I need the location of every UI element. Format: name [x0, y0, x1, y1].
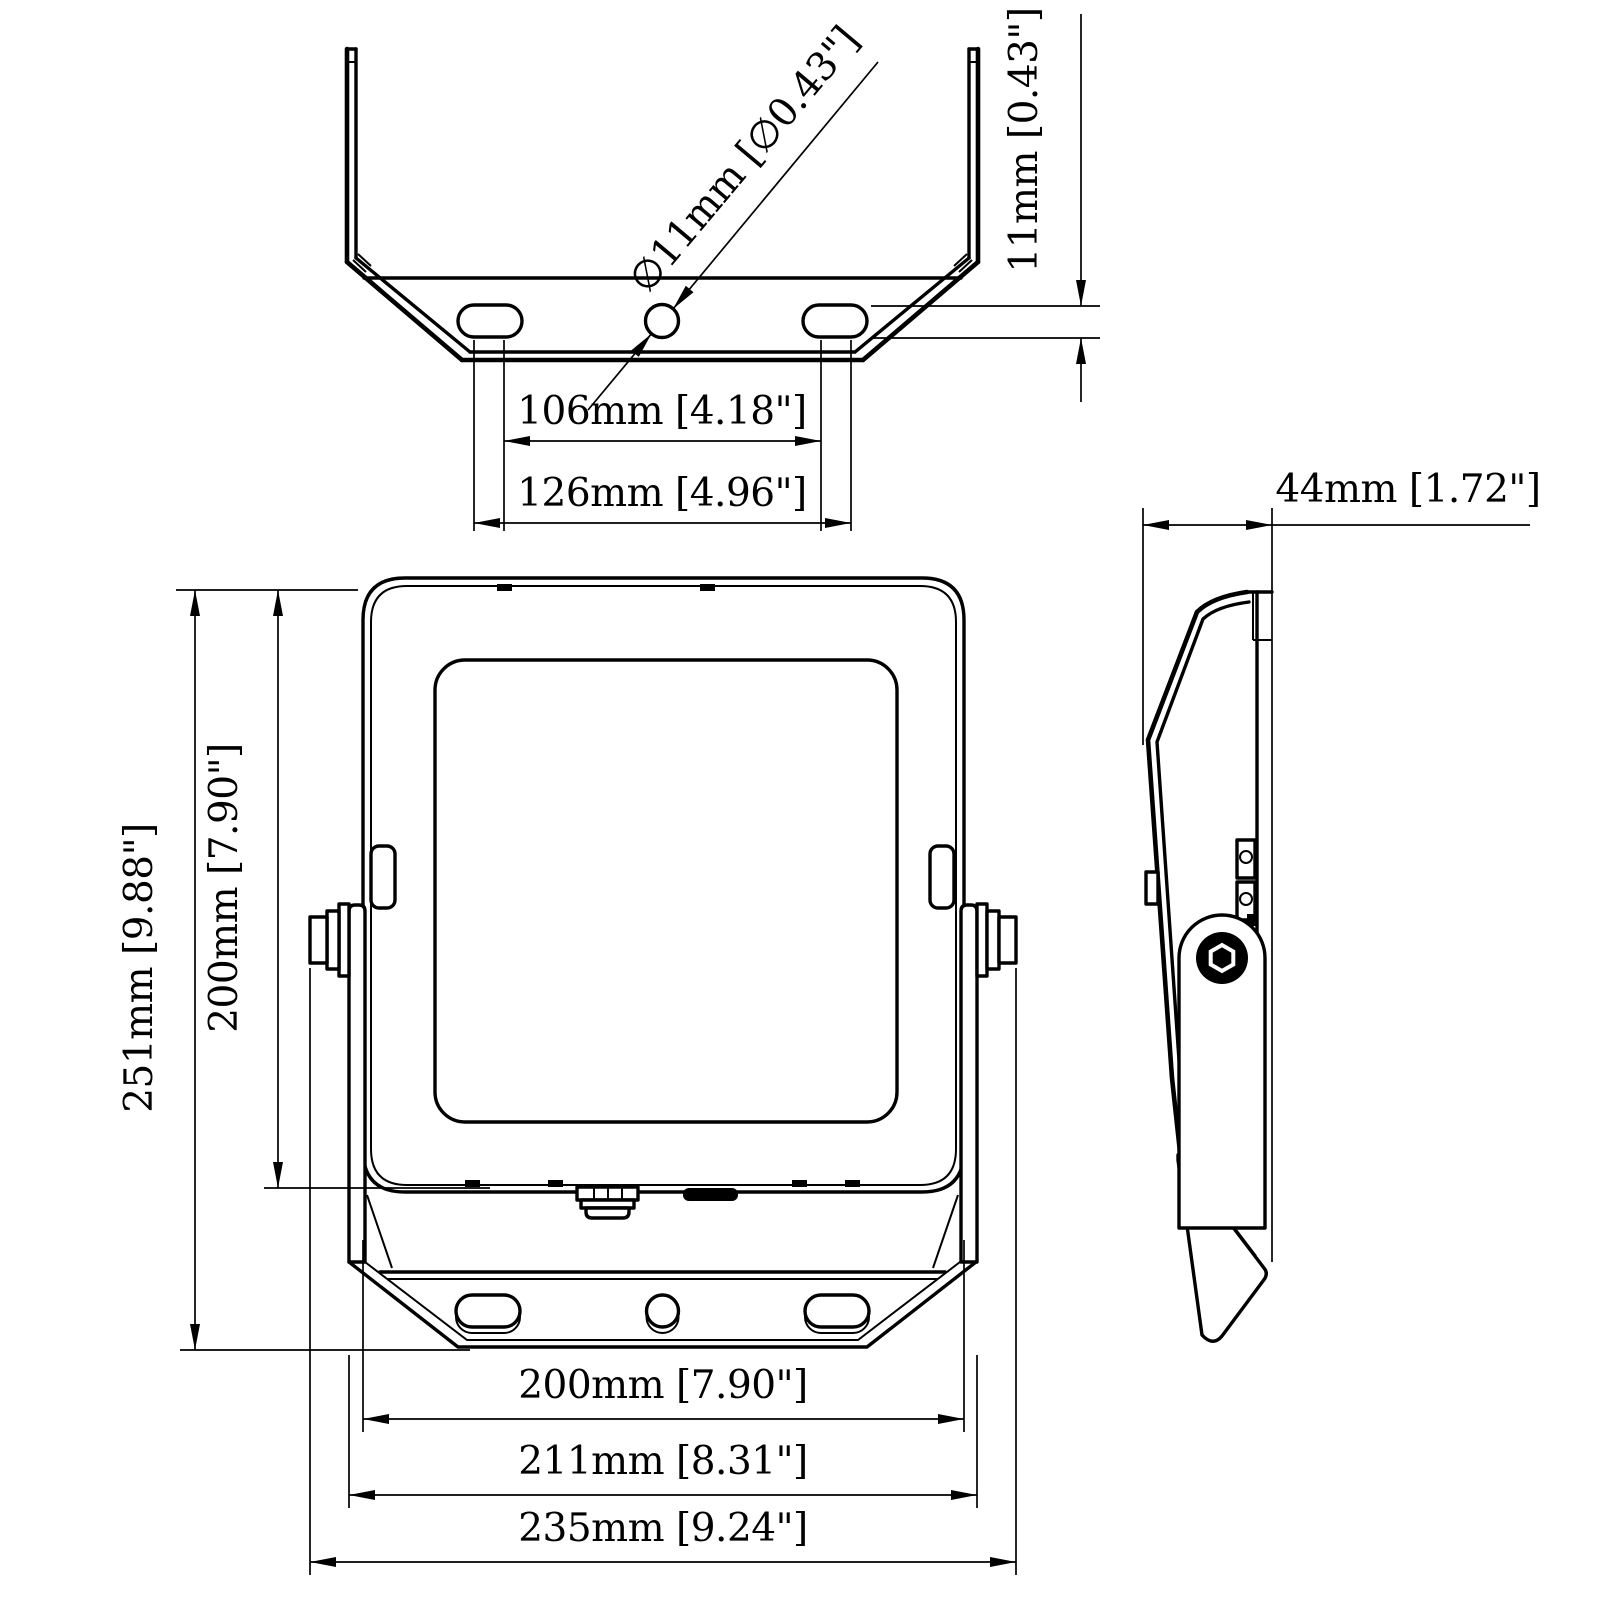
housing-top-tick-2 — [700, 584, 715, 591]
housing-bottom-tick-1 — [465, 1180, 480, 1187]
dim-slot-width: 11mm [0.43"] — [1002, 7, 1047, 272]
bracket-slot-right — [803, 305, 867, 337]
housing-top-tick-1 — [497, 584, 512, 591]
dimension-drawing: ∅11mm [∅0.43"] 11mm [0.43"] 106mm [4.18"… — [0, 0, 1600, 1600]
foot-slot-right — [805, 1295, 869, 1327]
overall-height-arrow-top — [190, 590, 200, 616]
pivot-bolt — [1196, 932, 1248, 984]
top-view-dimensions: ∅11mm [∅0.43"] 11mm [0.43"] 106mm [4.18"… — [474, 7, 1100, 531]
pivot-ring-left — [327, 911, 339, 969]
pivot-knob-left — [310, 917, 327, 963]
slot-width-arrow-top — [1076, 280, 1086, 306]
foot-hole — [647, 1295, 679, 1327]
overall-width-arrow-left — [310, 1557, 336, 1567]
depth-arrow-left — [1143, 520, 1169, 530]
mounting-bracket-top-view — [347, 49, 978, 360]
slot-width-arrow-bottom — [1076, 338, 1086, 364]
bracket-arm-right — [961, 905, 977, 1262]
body-width-arrow-right — [938, 1414, 964, 1424]
depth-arrow-right — [1246, 520, 1272, 530]
slot-spacing-outer-arrow-right — [825, 518, 851, 528]
dim-body-width: 200mm [7.90"] — [518, 1363, 808, 1408]
dim-slot-spacing-inner: 106mm [4.18"] — [517, 389, 807, 434]
front-view-dimensions: 251mm [9.88"] 200mm [7.90"] 200mm [7.90"… — [117, 590, 1016, 1575]
foot-slot-left — [456, 1295, 520, 1327]
housing-bottom-tick-2 — [548, 1180, 563, 1187]
body-width-arrow-left — [363, 1414, 389, 1424]
side-clip-edge — [1146, 872, 1158, 904]
bracket-width-arrow-right — [951, 1490, 977, 1500]
foot-corner-joins — [367, 1195, 958, 1268]
lens-frame — [435, 660, 897, 1122]
overall-height-arrow-bottom — [190, 1324, 200, 1350]
side-clip-left — [371, 846, 395, 908]
cable-gland-cap — [586, 1208, 629, 1218]
dim-overall-width: 235mm [9.24"] — [518, 1506, 808, 1551]
housing-bottom-tick-3 — [792, 1180, 807, 1187]
dim-bracket-width: 211mm [8.31"] — [518, 1439, 808, 1484]
housing-outer-edge — [363, 578, 964, 1192]
dim-body-height: 200mm [7.90"] — [202, 743, 247, 1033]
body-height-arrow-top — [273, 590, 283, 616]
overall-width-arrow-right — [990, 1557, 1016, 1567]
floodlight-front-view — [310, 578, 1016, 1347]
side-clip-right — [930, 846, 954, 908]
housing-bottom-tick-4 — [845, 1180, 860, 1187]
pivot-ring-right — [987, 911, 999, 969]
slot-spacing-outer-arrow-left — [474, 518, 500, 528]
dim-hole-diameter: ∅11mm [∅0.43"] — [620, 18, 868, 301]
drawing-svg: ∅11mm [∅0.43"] 11mm [0.43"] 106mm [4.18"… — [0, 0, 1600, 1600]
dim-depth: 44mm [1.72"] — [1275, 467, 1540, 512]
dim-overall-height: 251mm [9.88"] — [117, 823, 162, 1113]
slot-spacing-inner-arrow-left — [504, 436, 530, 446]
bracket-width-arrow-left — [349, 1490, 375, 1500]
dim-slot-spacing-outer: 126mm [4.96"] — [517, 471, 807, 516]
bracket-arm-left — [349, 905, 365, 1262]
vent-plug — [683, 1188, 738, 1201]
body-height-arrow-bottom — [273, 1162, 283, 1188]
bracket-left-bend-inner — [356, 258, 470, 352]
slot-spacing-inner-arrow-right — [795, 436, 821, 446]
housing-inner-edge — [371, 586, 956, 1185]
pivot-knob-right — [999, 917, 1016, 963]
floodlight-side-view — [1146, 592, 1272, 1341]
bracket-slot-left — [458, 305, 522, 337]
